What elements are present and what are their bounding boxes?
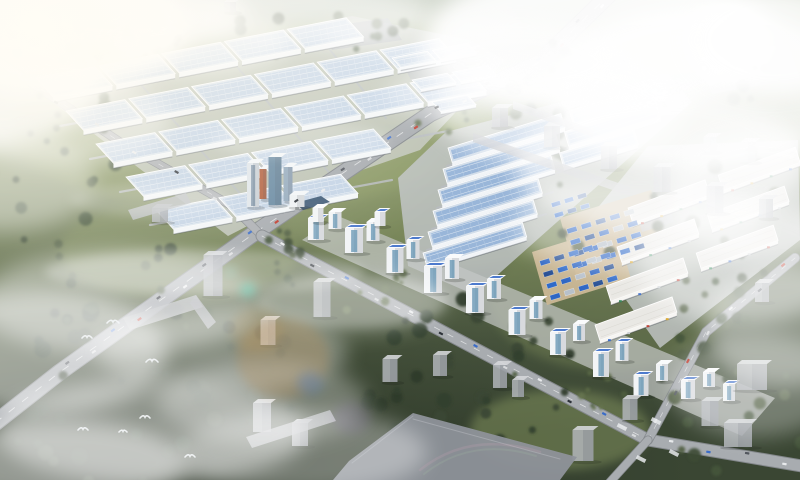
scene-svg <box>0 0 800 480</box>
sun-glare <box>0 0 800 480</box>
industrial-park-aerial-render <box>0 0 800 480</box>
